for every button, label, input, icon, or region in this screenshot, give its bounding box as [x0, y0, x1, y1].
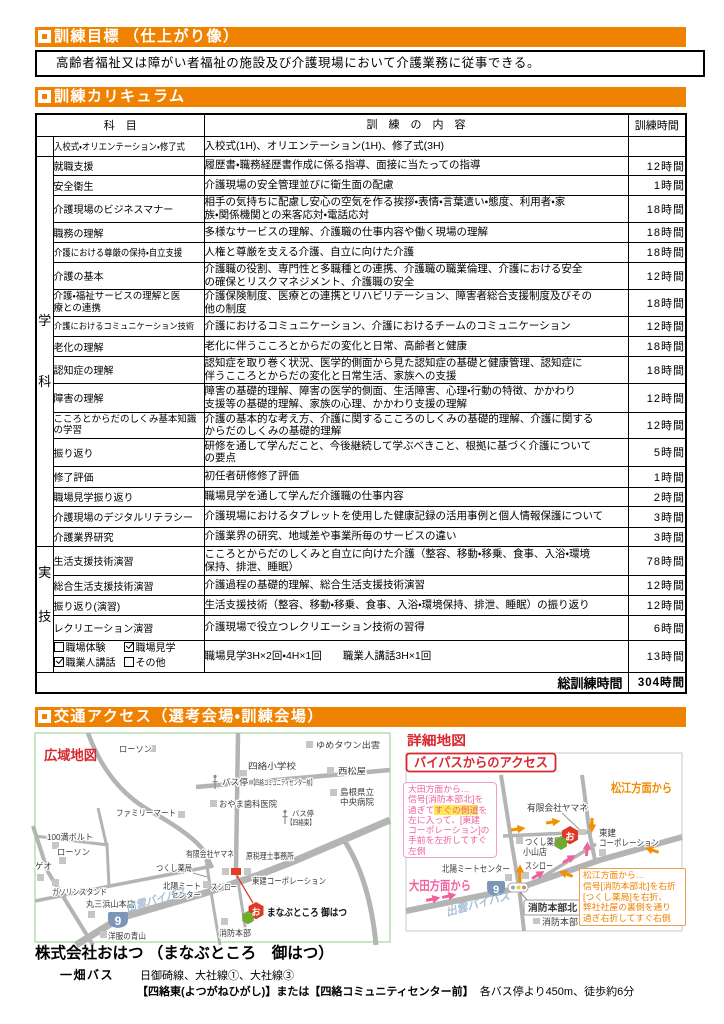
svg-text:ゆめタウン出雲: ゆめタウン出雲	[316, 740, 381, 750]
svg-text:ゲオ: ゲオ	[35, 861, 52, 871]
svg-text:消防本部: 消防本部	[542, 916, 578, 927]
svg-text:お: お	[565, 832, 575, 843]
svg-text:おやま歯科医院: おやま歯科医院	[219, 799, 277, 809]
svg-text:つくし薬局: つくし薬局	[156, 863, 192, 873]
svg-text:スシロー: スシロー	[525, 861, 553, 871]
svg-text:バス停: バス停	[292, 808, 314, 818]
svg-text:コーポレーション: コーポレーション	[599, 838, 659, 848]
svg-text:東建: 東建	[599, 827, 616, 838]
svg-text:【四絡コミュニティセンター前】: 【四絡コミュニティセンター前】	[251, 777, 315, 787]
svg-text:お: お	[251, 907, 260, 917]
svg-text:有限会社ヤマネ: 有限会社ヤマネ	[186, 849, 234, 859]
svg-text:消防本部: 消防本部	[219, 928, 251, 938]
svg-text:詳細地図: 詳細地図	[407, 733, 466, 748]
svg-text:洋服の青山: 洋服の青山	[108, 931, 146, 941]
svg-text:島根県立: 島根県立	[340, 787, 374, 797]
svg-text:原税理士事務所: 原税理士事務所	[246, 851, 294, 861]
svg-text:【四絡東】: 【四絡東】	[287, 817, 315, 827]
svg-text:広域地図: 広域地図	[44, 747, 97, 763]
svg-text:バス停: バス停	[222, 777, 248, 787]
svg-text:有限会社ヤマネ: 有限会社ヤマネ	[527, 802, 588, 813]
svg-text:まなぶところ 御はつ: まなぶところ 御はつ	[267, 906, 347, 919]
svg-text:西松屋: 西松屋	[338, 766, 367, 776]
svg-text:大田方面から: 大田方面から	[409, 878, 471, 893]
svg-text:ローソン: ローソン	[119, 744, 152, 754]
svg-text:ファミリーマート: ファミリーマート	[116, 808, 176, 818]
svg-text:北陽ミートセンター: 北陽ミートセンター	[442, 864, 510, 874]
svg-text:ローソン: ローソン	[57, 847, 90, 857]
svg-text:四絡小学校: 四絡小学校	[248, 761, 297, 771]
svg-text:松江方面から: 松江方面から	[611, 780, 672, 795]
svg-text:スシロー: スシロー	[211, 882, 237, 892]
svg-text:バイパスからのアクセス: バイパスからのアクセス	[414, 755, 548, 770]
svg-text:消防本部北: 消防本部北	[528, 901, 577, 914]
svg-text:100満ボルト: 100満ボルト	[47, 832, 93, 842]
svg-text:東建コーポレーション: 東建コーポレーション	[252, 876, 326, 886]
svg-text:ガソリンスタンド: ガソリンスタンド	[52, 887, 107, 897]
svg-text:9: 9	[115, 914, 122, 928]
svg-text:小山店: 小山店	[523, 847, 547, 857]
svg-text:中央病院: 中央病院	[340, 797, 374, 807]
